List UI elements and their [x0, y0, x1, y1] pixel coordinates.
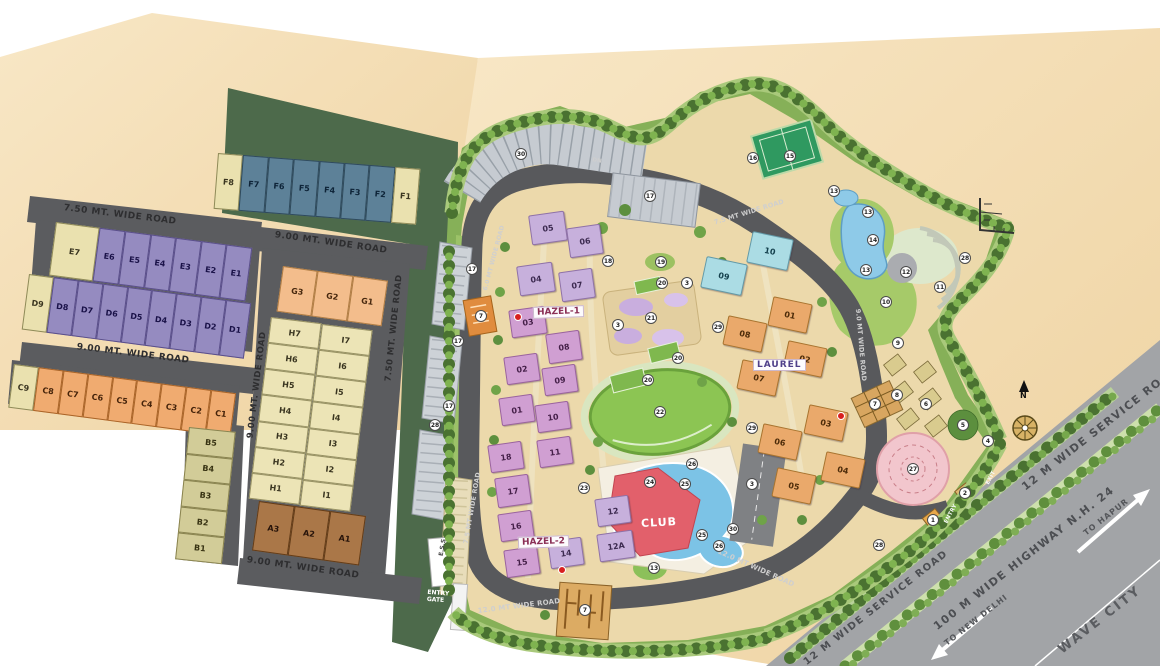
- building-label-hazel-1: HAZEL-1: [533, 305, 584, 319]
- tower-hp-08: 08: [545, 330, 583, 364]
- amenity-marker-3: 3: [612, 319, 624, 331]
- amenity-marker-18: 18: [602, 255, 614, 267]
- tower-hl-06: 06: [566, 224, 604, 258]
- site-plan: F8F7F6F5F4F3F2F1 E7E6E5E4E3E2E1 D9D8D7D6…: [0, 0, 1160, 666]
- amenity-marker-30: 30: [515, 148, 527, 160]
- building-label-laurel: LAUREL: [753, 359, 806, 371]
- amenity-marker-8: 8: [891, 389, 903, 401]
- tower-hl-07: 07: [558, 268, 596, 302]
- amenity-marker-2: 2: [959, 487, 971, 499]
- amenity-marker-7: 7: [475, 310, 487, 322]
- amenity-marker-23: 23: [578, 482, 590, 494]
- amenity-marker-28: 28: [959, 252, 971, 264]
- amenity-marker-17: 17: [443, 400, 455, 412]
- club-label: CLUB: [641, 515, 678, 530]
- amenity-marker-9: 9: [892, 337, 904, 349]
- plot-f1: F1: [391, 167, 421, 225]
- amenity-marker-3: 3: [746, 478, 758, 490]
- tower-hl-04: 04: [516, 262, 556, 297]
- tower-hp-11: 11: [536, 436, 574, 468]
- amenity-marker-4: 4: [982, 435, 994, 447]
- amenity-marker-19: 19: [655, 256, 667, 268]
- amenity-marker-17: 17: [466, 263, 478, 275]
- amenity-marker-22: 22: [654, 406, 666, 418]
- tower-hp-09: 09: [541, 364, 579, 396]
- amenity-marker-12: 12: [900, 266, 912, 278]
- red-dot-marker: [558, 566, 566, 574]
- plot-e7: E7: [49, 222, 100, 281]
- amenity-marker-20: 20: [642, 374, 654, 386]
- plot-a1: A1: [323, 511, 366, 566]
- tower-hl-05: 05: [528, 211, 568, 246]
- amenity-marker-1: 1: [927, 514, 939, 526]
- amenity-marker-27: 27: [907, 463, 919, 475]
- amenity-marker-26: 26: [713, 540, 725, 552]
- amenity-marker-25: 25: [679, 478, 691, 490]
- amenity-marker-13: 13: [860, 264, 872, 276]
- tower-hp-18: 18: [487, 441, 525, 473]
- amenity-marker-13: 13: [828, 185, 840, 197]
- amenity-marker-3: 3: [681, 277, 693, 289]
- building-label-hazel-2: HAZEL-2: [518, 535, 569, 549]
- tower-hp-02: 02: [503, 353, 541, 385]
- amenity-marker-17: 17: [452, 335, 464, 347]
- amenity-marker-13: 13: [862, 206, 874, 218]
- entry-gate-label: ENTRY GATE: [427, 590, 460, 606]
- amenity-marker-6: 6: [920, 398, 932, 410]
- amenity-marker-17: 17: [644, 190, 656, 202]
- plot-g1: G1: [347, 276, 388, 326]
- north-label: N: [1020, 391, 1027, 400]
- amenity-marker-7: 7: [869, 398, 881, 410]
- amenity-marker-11: 11: [934, 281, 946, 293]
- tower-hl-12: 12: [594, 495, 632, 527]
- amenity-marker-25: 25: [696, 529, 708, 541]
- amenity-marker-7: 7: [579, 604, 591, 616]
- amenity-marker-5: 5: [957, 419, 969, 431]
- amenity-marker-28: 28: [873, 539, 885, 551]
- tower-hp-17: 17: [494, 474, 532, 508]
- red-dot-marker: [514, 313, 522, 321]
- amenity-marker-20: 20: [656, 277, 668, 289]
- tower-hp-10: 10: [534, 401, 572, 433]
- amenity-marker-15: 15: [784, 150, 796, 162]
- amenity-marker-26: 26: [686, 458, 698, 470]
- tower-hl-12a: 12A: [596, 530, 636, 563]
- amenity-marker-21: 21: [645, 312, 657, 324]
- red-dot-marker: [837, 412, 845, 420]
- amenity-marker-14: 14: [867, 234, 879, 246]
- amenity-marker-16: 16: [747, 152, 759, 164]
- amenity-marker-29: 29: [746, 422, 758, 434]
- tower-hp-15: 15: [503, 546, 541, 578]
- amenity-marker-10: 10: [880, 296, 892, 308]
- plot-b1: B1: [175, 533, 225, 564]
- amenity-marker-29: 29: [712, 321, 724, 333]
- amenity-marker-28: 28: [429, 419, 441, 431]
- amenity-marker-30: 30: [727, 523, 739, 535]
- amenity-marker-13: 13: [648, 562, 660, 574]
- amenity-marker-20: 20: [672, 352, 684, 364]
- amenity-marker-24: 24: [644, 476, 656, 488]
- tower-hp-01: 01: [498, 394, 536, 426]
